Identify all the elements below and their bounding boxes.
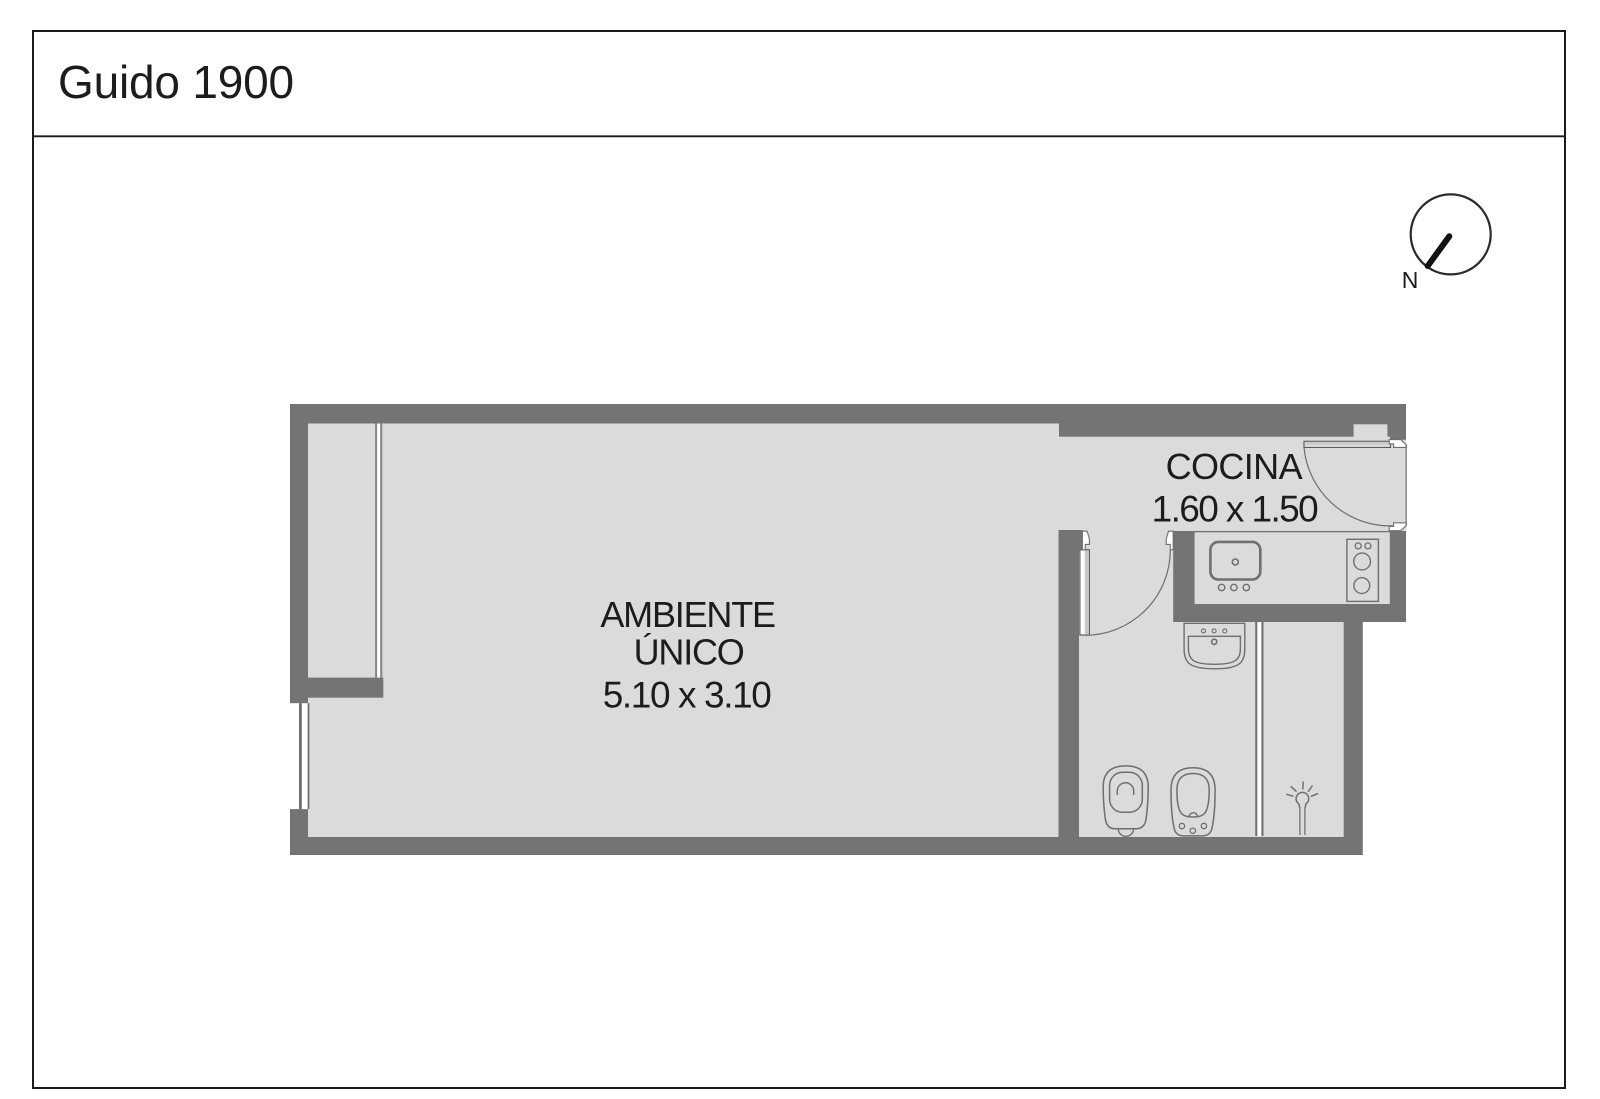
svg-text:COCINA: COCINA (1166, 446, 1303, 487)
svg-text:AMBIENTE: AMBIENTE (600, 594, 775, 635)
svg-text:ÚNICO: ÚNICO (634, 632, 744, 673)
svg-text:5.10 x 3.10: 5.10 x 3.10 (603, 675, 772, 716)
svg-text:1.60 x 1.50: 1.60 x 1.50 (1152, 488, 1319, 529)
svg-text:Guido 1900: Guido 1900 (58, 56, 294, 108)
svg-text:N: N (1402, 267, 1419, 293)
